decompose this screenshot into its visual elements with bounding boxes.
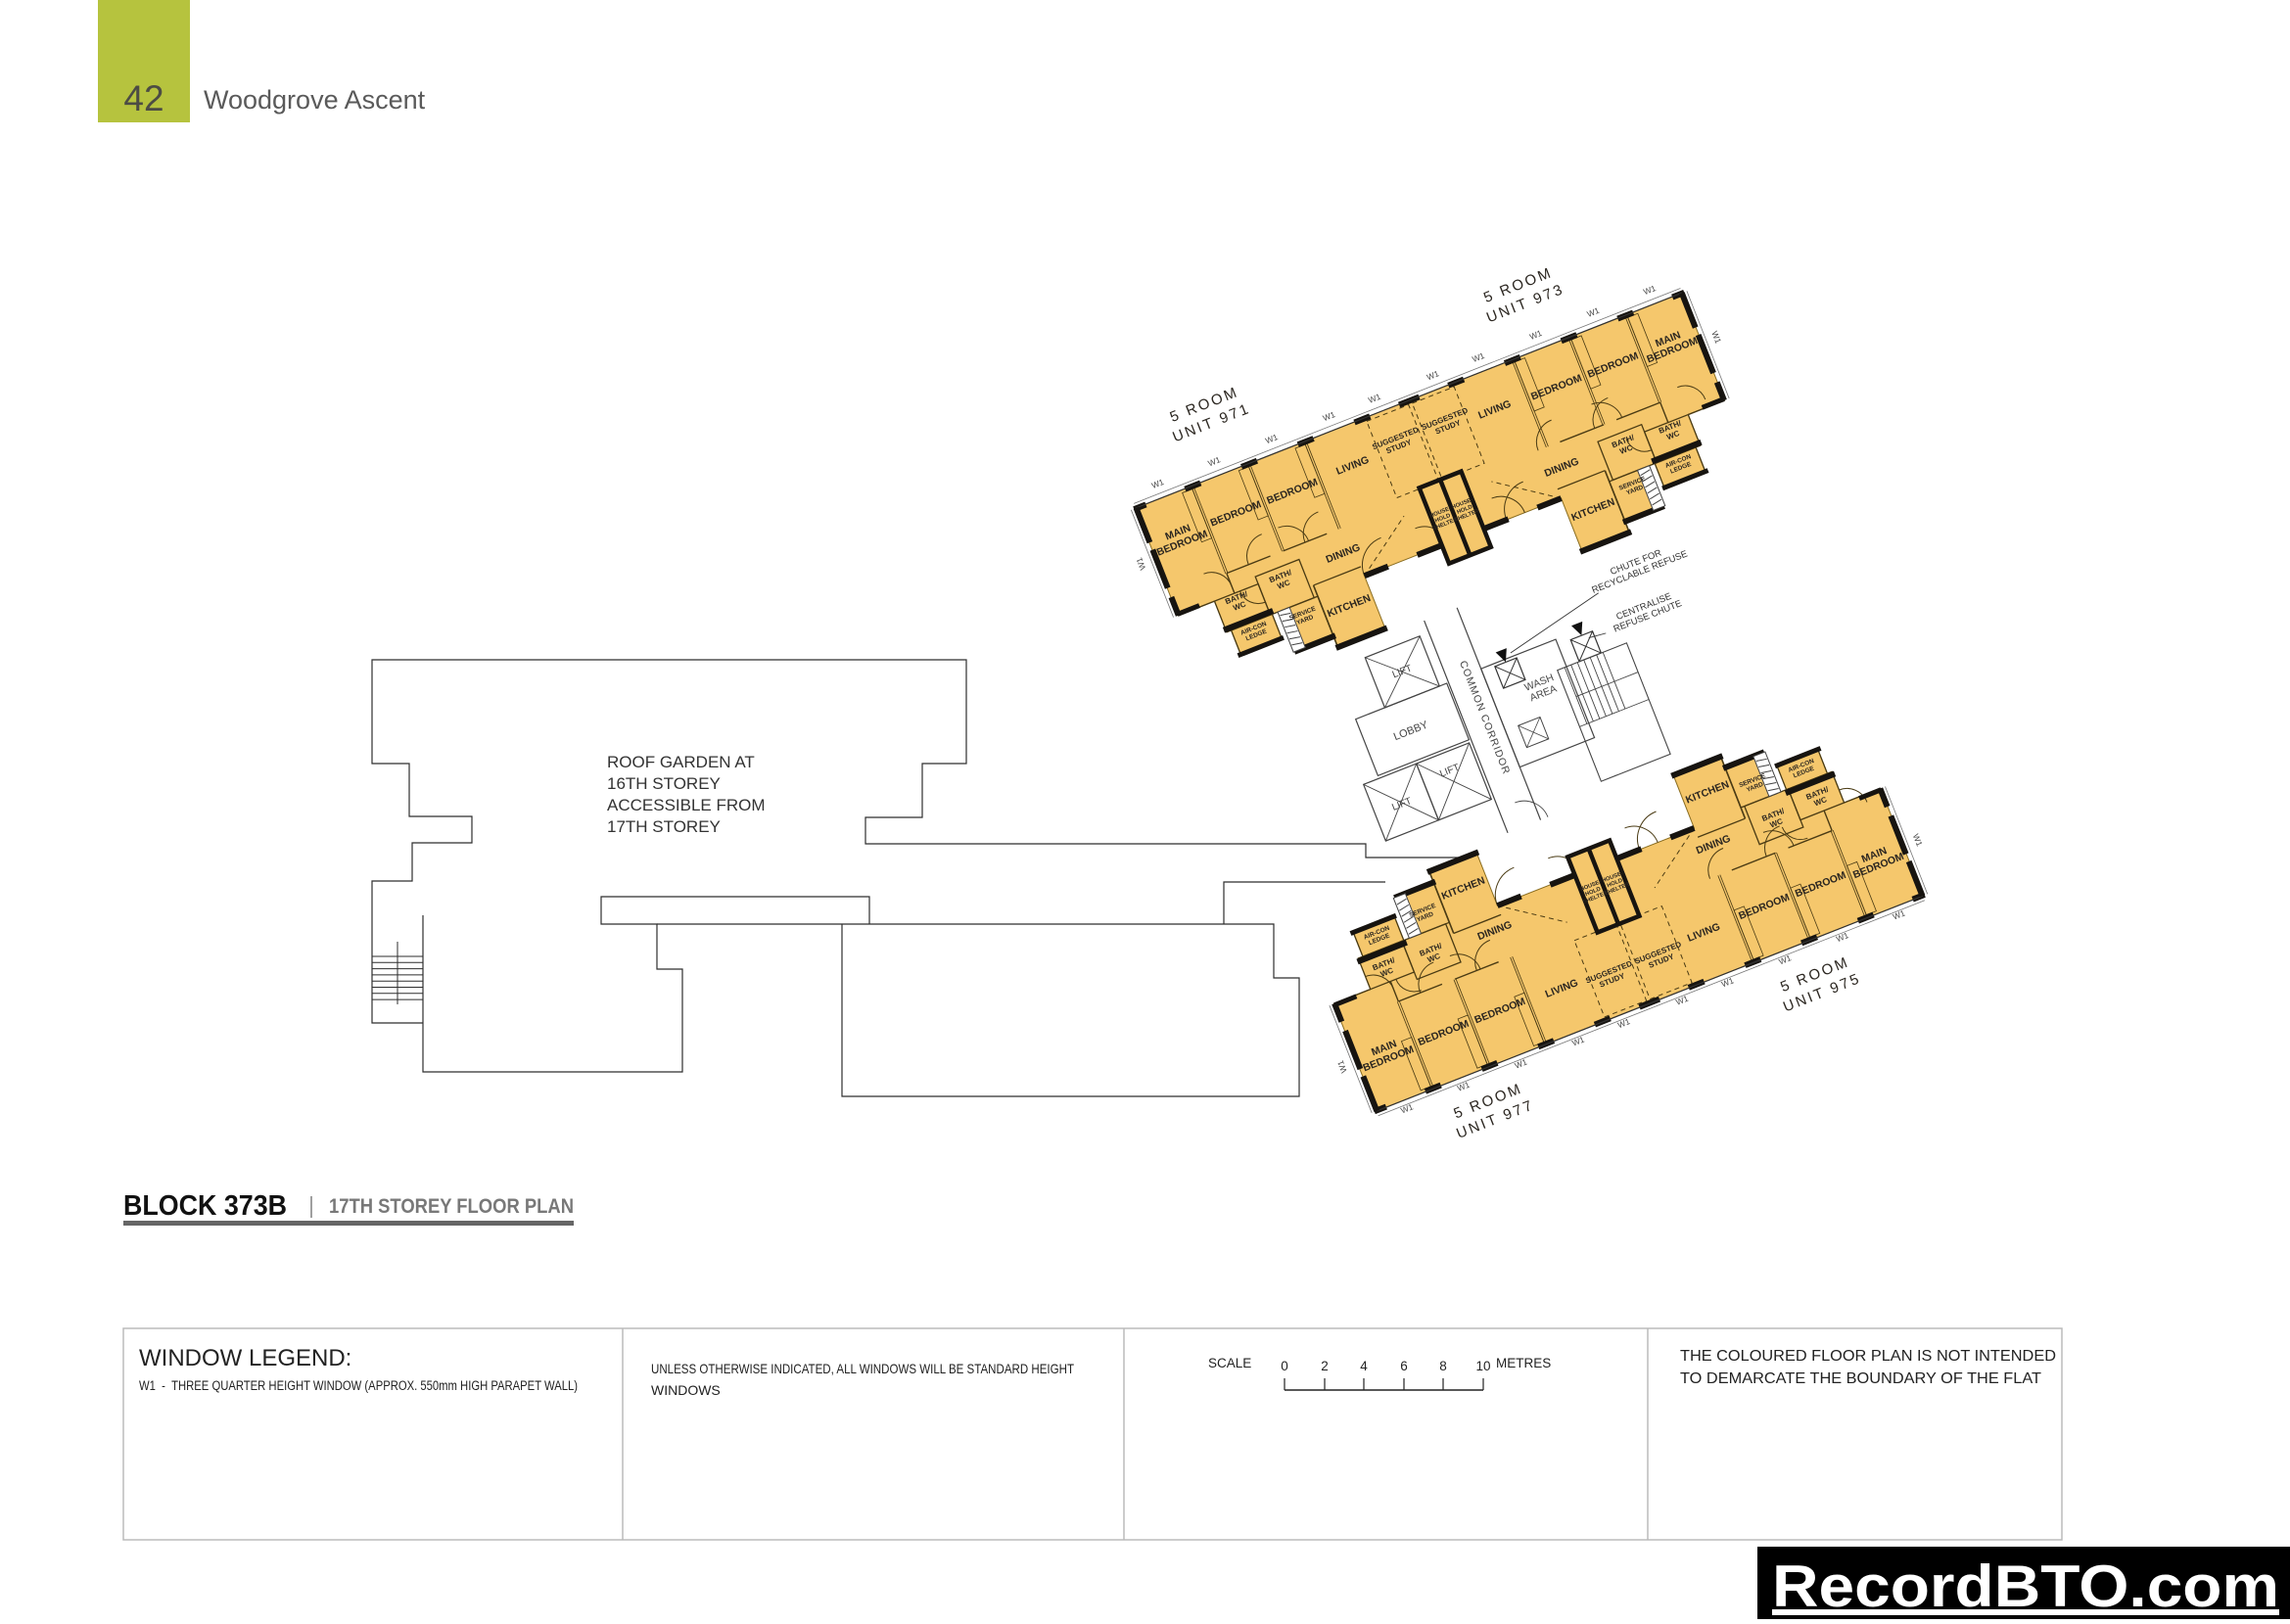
svg-text:4: 4 xyxy=(1360,1359,1368,1373)
svg-text:THE COLOURED FLOOR PLAN IS NOT: THE COLOURED FLOOR PLAN IS NOT INTENDED xyxy=(1680,1348,2056,1365)
svg-text:|: | xyxy=(308,1192,314,1218)
svg-text:RecordBTO.com: RecordBTO.com xyxy=(1772,1554,2279,1619)
svg-text:6: 6 xyxy=(1400,1359,1408,1373)
svg-text:2: 2 xyxy=(1321,1359,1329,1373)
svg-text:0: 0 xyxy=(1281,1359,1288,1373)
svg-text:ROOF GARDEN AT: ROOF GARDEN AT xyxy=(607,753,755,771)
svg-text:17TH STOREY: 17TH STOREY xyxy=(607,817,721,836)
svg-text:16TH STOREY: 16TH STOREY xyxy=(607,774,721,793)
svg-text:42: 42 xyxy=(123,78,164,118)
svg-text:METRES: METRES xyxy=(1496,1356,1551,1370)
svg-text:17TH STOREY FLOOR PLAN: 17TH STOREY FLOOR PLAN xyxy=(329,1195,574,1218)
svg-text:UNLESS OTHERWISE INDICATED, A: UNLESS OTHERWISE INDICATED, ALL WINDOWS … xyxy=(651,1361,1074,1376)
svg-text:W1 - THREE QUARTER HEIGHT WI: W1 - THREE QUARTER HEIGHT WINDOW (APPROX… xyxy=(139,1378,578,1393)
svg-text:ACCESSIBLE FROM: ACCESSIBLE FROM xyxy=(607,796,766,814)
svg-text:10: 10 xyxy=(1475,1359,1490,1373)
svg-text:WINDOW LEGEND:: WINDOW LEGEND: xyxy=(139,1345,351,1371)
svg-text:8: 8 xyxy=(1439,1359,1447,1373)
svg-text:WINDOWS: WINDOWS xyxy=(651,1382,721,1398)
svg-text:TO DEMARCATE THE BOUNDARY OF T: TO DEMARCATE THE BOUNDARY OF THE FLAT xyxy=(1680,1370,2041,1387)
svg-text:Woodgrove Ascent: Woodgrove Ascent xyxy=(204,85,426,115)
svg-text:BLOCK 373B: BLOCK 373B xyxy=(123,1190,287,1222)
svg-text:SCALE: SCALE xyxy=(1208,1356,1251,1370)
